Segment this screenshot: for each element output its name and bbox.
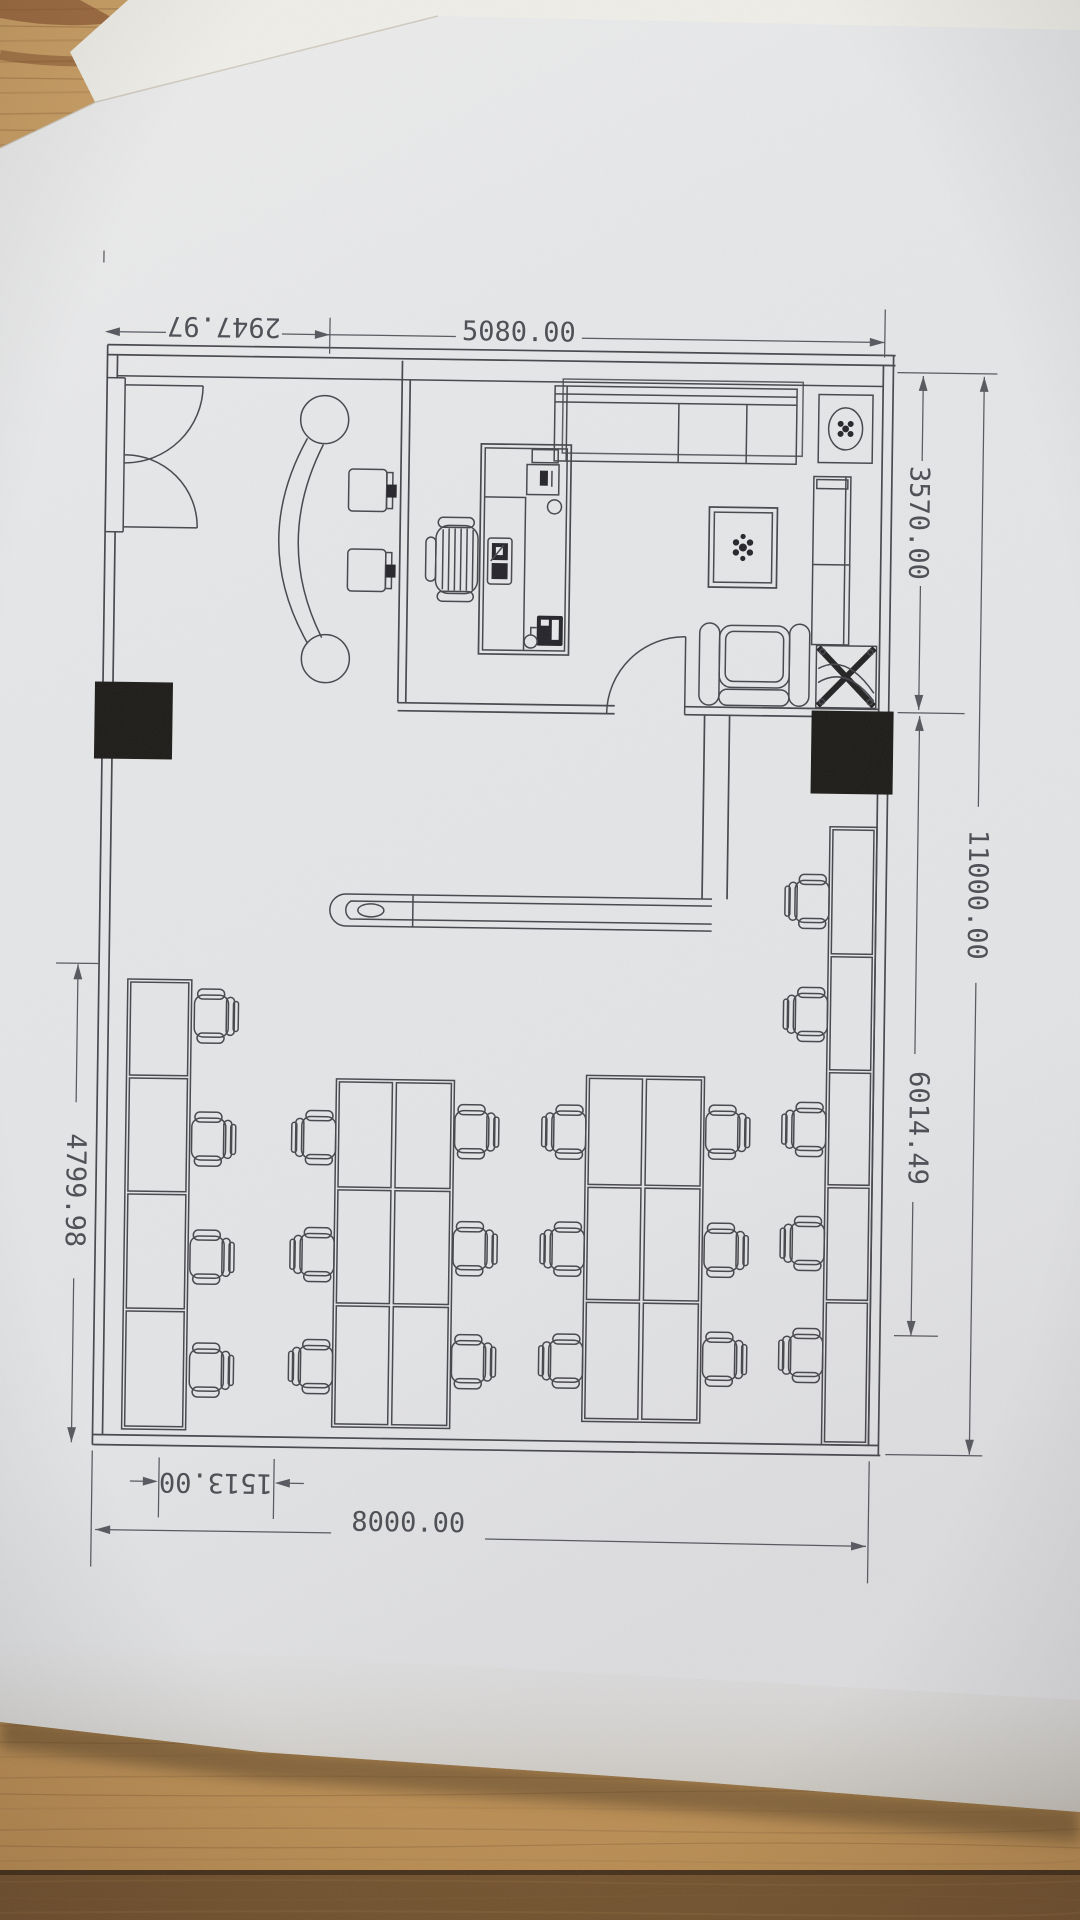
photo-of-floor-plan: 2947.97 5080.00 3570.00 6014.49 bbox=[0, 0, 1080, 1920]
vignette bbox=[0, 0, 1080, 1920]
scene-svg: 2947.97 5080.00 3570.00 6014.49 bbox=[0, 0, 1080, 1920]
